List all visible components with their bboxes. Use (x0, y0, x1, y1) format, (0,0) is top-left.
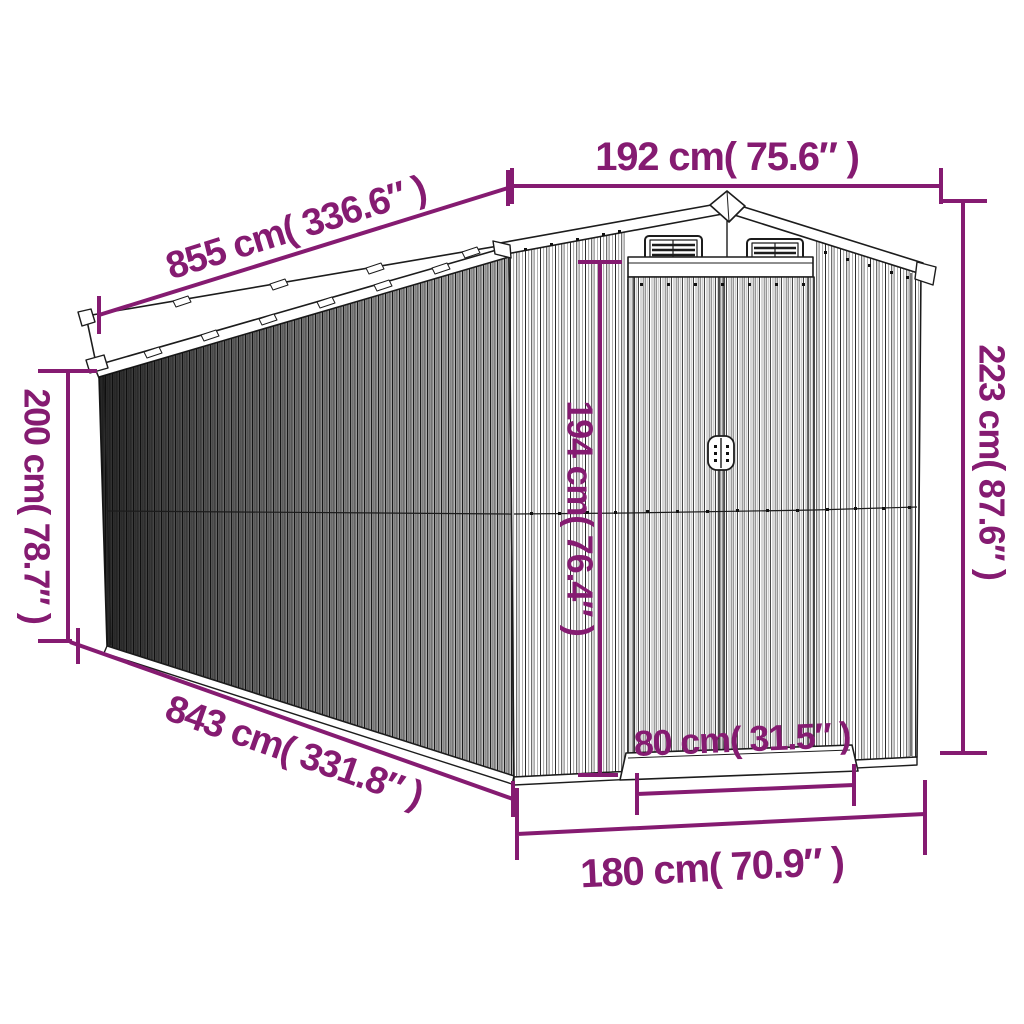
dimension-base-width: 180 cm( 70.9″ ) (517, 780, 925, 896)
sliding-doors (628, 277, 814, 760)
back-height-label: 200 cm( 78.7″ ) (17, 388, 58, 624)
total-height-label: 223 cm( 87.6″ ) (972, 344, 1013, 580)
door-header-rail (628, 257, 813, 277)
door-handle (708, 436, 734, 470)
base-width-label: 180 cm( 70.9″ ) (579, 840, 844, 897)
door-height-label: 194 cm( 76.4″ ) (560, 400, 601, 636)
product-dimension-diagram: 192 cm( 75.6″ ) 855 cm( 336.6″ ) 200 cm(… (0, 0, 1024, 1024)
shed-diagram-svg: 192 cm( 75.6″ ) 855 cm( 336.6″ ) 200 cm(… (0, 0, 1024, 1024)
dimension-back-height: 200 cm( 78.7″ ) (17, 371, 98, 641)
dimension-total-height: 223 cm( 87.6″ ) (940, 201, 1013, 753)
roof-back-end-cap (78, 309, 95, 326)
front-width-label: 192 cm( 75.6″ ) (595, 135, 859, 179)
